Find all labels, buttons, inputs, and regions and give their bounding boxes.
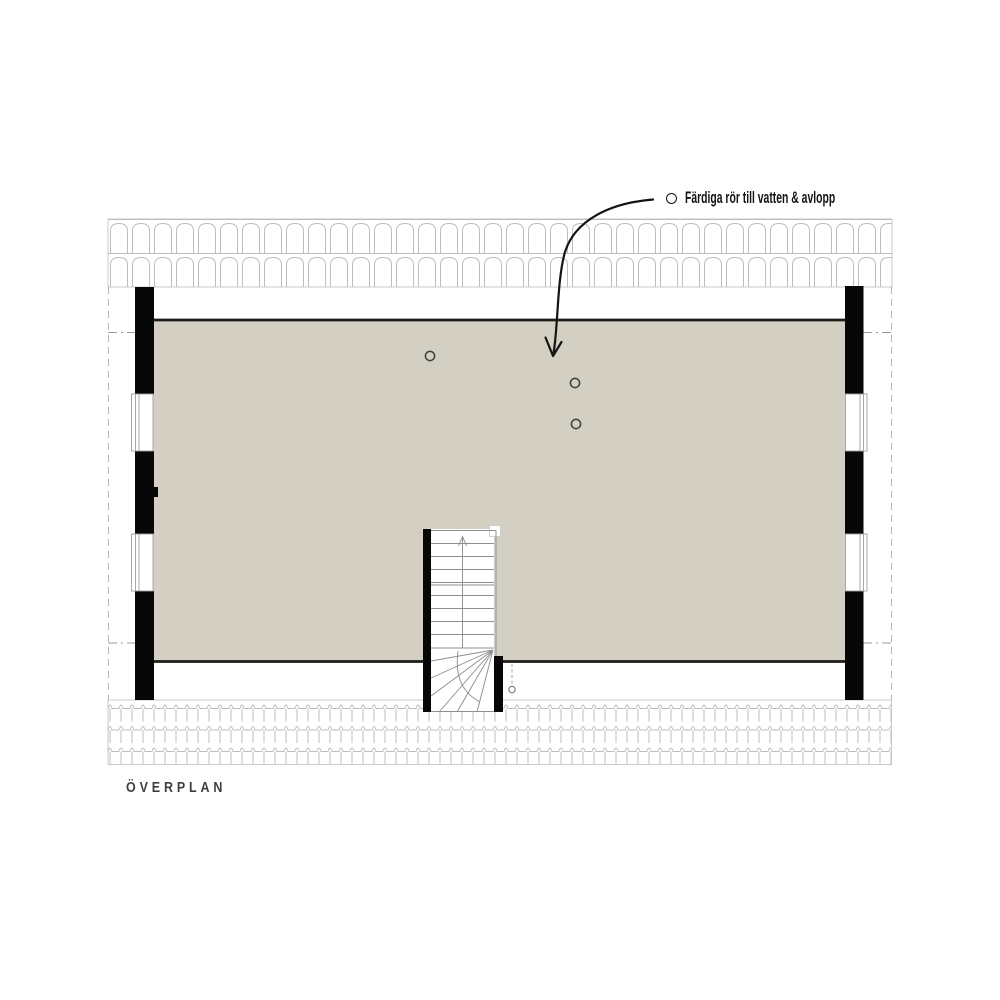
staircase [423,526,503,713]
stair-post-marker [509,664,515,693]
window-left-1 [132,394,154,451]
annotation-label: Färdiga rör till vatten & avlopp [685,189,835,208]
attic-floor [154,320,846,661]
window-right-2 [846,534,868,591]
window-right-1 [846,394,868,451]
annotation-legend: Färdiga rör till vatten & avlopp [666,188,923,208]
floor-plan-page: Färdiga rör till vatten & avlopp ÖVERPLA… [0,0,1000,1000]
roof-tiles-top [108,219,892,287]
floor-plan-drawing [0,0,1000,1000]
stair-wall-left [423,529,431,712]
pipe-legend-circle-icon [666,193,677,204]
wall-stub [151,487,158,497]
stair-wall-right [494,656,503,712]
window-left-2 [132,534,154,591]
stair-corner-notch [490,526,501,537]
exterior-wall-right [845,286,864,700]
plan-title: ÖVERPLAN [126,780,226,796]
